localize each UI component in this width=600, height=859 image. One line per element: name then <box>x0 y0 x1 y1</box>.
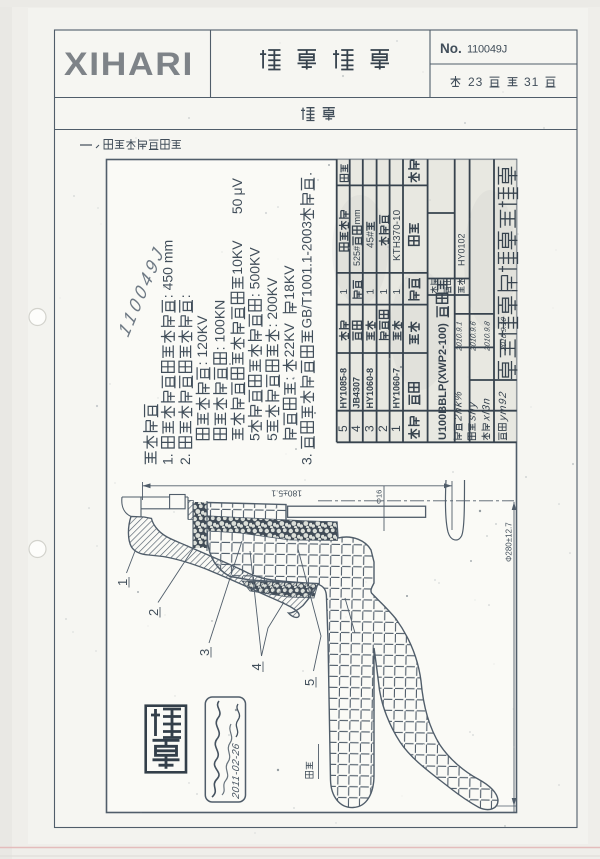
svg-text:μV: μV <box>229 177 245 195</box>
svg-text:1: 1 <box>392 289 403 295</box>
svg-text:.: . <box>299 172 315 176</box>
svg-text:50: 50 <box>229 198 245 214</box>
svg-text:2011-02-26: 2011-02-26 <box>231 742 242 800</box>
svg-text:3.: 3. <box>299 453 315 465</box>
svg-text:1: 1 <box>366 289 377 295</box>
svg-text:5: 5 <box>246 433 262 441</box>
svg-text:: 100KN: : 100KN <box>212 300 228 351</box>
svg-text:525#: 525# <box>352 246 362 266</box>
svg-text:180±5.1: 180±5.1 <box>271 489 302 499</box>
svg-text:3: 3 <box>197 649 212 656</box>
svg-text:shy: shy <box>467 400 479 421</box>
svg-text:1: 1 <box>389 425 403 432</box>
svg-text:22KV: 22KV <box>281 322 297 357</box>
svg-text:HY1085-8: HY1085-8 <box>338 368 348 409</box>
svg-text:2hk%: 2hk% <box>453 389 465 422</box>
svg-text:4: 4 <box>249 663 264 670</box>
svg-text:4: 4 <box>349 425 363 432</box>
svg-text:xl3n: xl3n <box>481 396 493 422</box>
svg-text:No.: No. <box>440 41 462 56</box>
svg-text:1: 1 <box>379 289 390 295</box>
svg-text:2: 2 <box>146 609 161 616</box>
svg-text:1: 1 <box>339 289 350 295</box>
svg-text:18KV: 18KV <box>281 265 297 300</box>
svg-text:45#: 45# <box>366 231 377 248</box>
svg-text:5: 5 <box>336 425 350 432</box>
svg-text:1.: 1. <box>159 453 175 465</box>
svg-text:: 500KV: : 500KV <box>246 247 262 297</box>
svg-text:GB/T1001.1-2003: GB/T1001.1-2003 <box>300 221 315 328</box>
svg-text:HY1060-8: HY1060-8 <box>365 368 375 409</box>
svg-text:5: 5 <box>302 679 317 686</box>
svg-text:1: 1 <box>115 579 130 586</box>
svg-text:2: 2 <box>376 425 390 432</box>
svg-text:HY0102: HY0102 <box>457 233 467 266</box>
svg-text:23: 23 <box>468 75 483 89</box>
svg-text:KTH370-10: KTH370-10 <box>392 209 403 261</box>
svg-text:2010.9.6: 2010.9.6 <box>469 320 478 353</box>
svg-text:JB4307: JB4307 <box>351 377 361 409</box>
svg-text:110049J: 110049J <box>467 44 507 56</box>
svg-text:31: 31 <box>524 75 539 89</box>
svg-text:ym92: ym92 <box>497 390 509 422</box>
svg-text::: : <box>177 294 193 298</box>
svg-text:2.: 2. <box>177 453 193 465</box>
svg-text:3: 3 <box>362 425 376 432</box>
svg-text:10KV: 10KV <box>229 240 245 275</box>
svg-text:: 120KV: : 120KV <box>194 315 210 365</box>
svg-text:HY1060-7: HY1060-7 <box>391 368 401 409</box>
svg-text:Φ280±12.7: Φ280±12.7 <box>505 522 514 562</box>
svg-text:Φ16: Φ16 <box>375 490 384 504</box>
svg-text:XIHARI: XIHARI <box>64 46 194 82</box>
svg-text:5: 5 <box>264 433 280 441</box>
svg-text:mm: mm <box>352 209 362 224</box>
svg-text:: 200KV: : 200KV <box>264 277 280 327</box>
svg-text:2010.9.8: 2010.9.8 <box>483 320 492 353</box>
svg-text:U100BBLP(XWP2-100): U100BBLP(XWP2-100) <box>437 323 449 440</box>
svg-text:2010.9.1: 2010.9.1 <box>455 321 464 353</box>
